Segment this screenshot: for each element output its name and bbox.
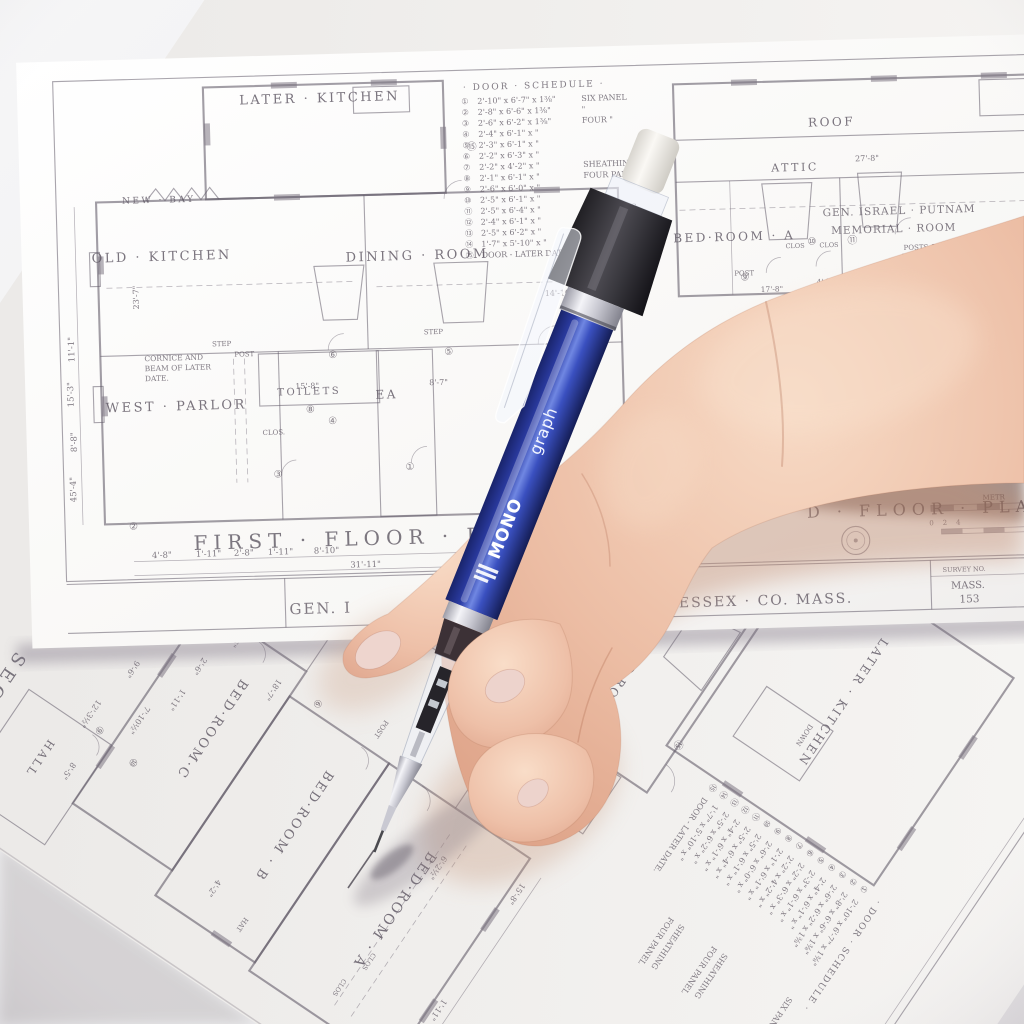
photo-scene: BED·ROOM · A BED·ROOM · B BED·ROOM·C HAL… [0,0,1024,1024]
scene-svg: BED·ROOM · A BED·ROOM · B BED·ROOM·C HAL… [0,0,1024,1024]
vignette [0,0,1024,1024]
